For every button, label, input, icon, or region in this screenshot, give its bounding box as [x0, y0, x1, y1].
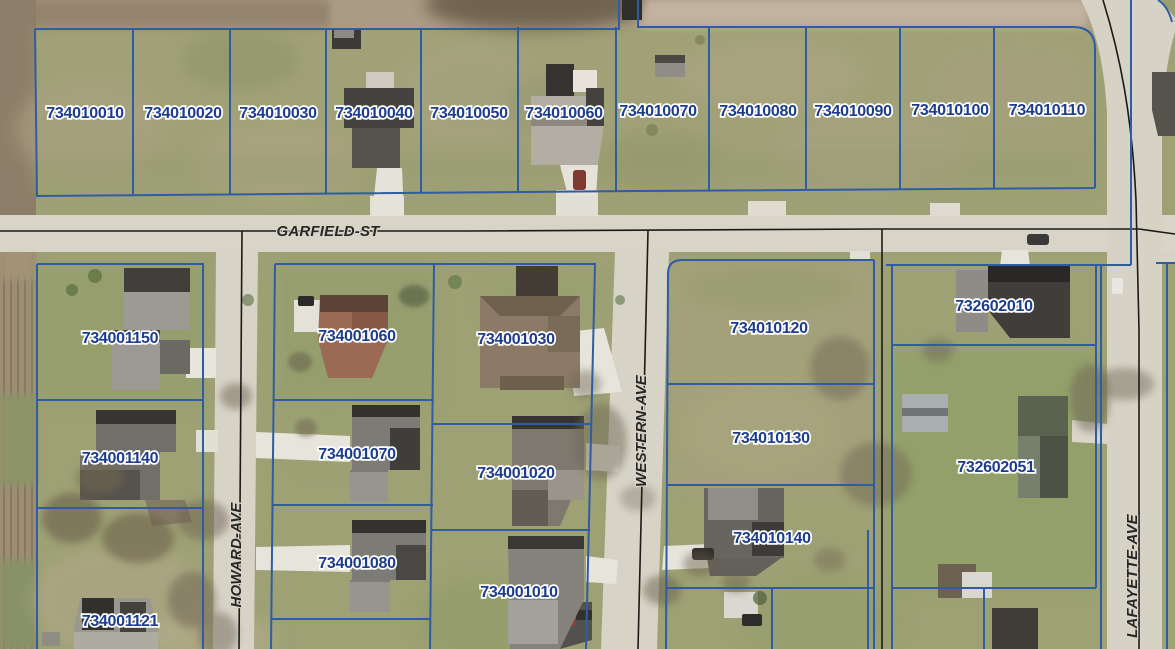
svg-text:734010100: 734010100: [911, 102, 989, 119]
svg-text:734001121: 734001121: [82, 613, 159, 630]
svg-text:734010090: 734010090: [814, 103, 892, 120]
svg-text:734010070: 734010070: [619, 103, 697, 120]
svg-text:WESTERN-AVE: WESTERN-AVE: [633, 374, 650, 487]
svg-text:LAFAYETTE-AVE: LAFAYETTE-AVE: [1124, 513, 1141, 638]
svg-text:GARFIELD-ST: GARFIELD-ST: [276, 223, 381, 240]
svg-text:734010020: 734010020: [144, 105, 222, 122]
svg-text:734010010: 734010010: [46, 105, 124, 122]
svg-text:734010110: 734010110: [1009, 102, 1086, 119]
svg-text:734010140: 734010140: [733, 530, 811, 547]
svg-text:734010080: 734010080: [719, 103, 797, 120]
svg-text:734001140: 734001140: [82, 450, 159, 467]
svg-text:734001030: 734001030: [477, 331, 555, 348]
svg-text:734001150: 734001150: [82, 330, 159, 347]
svg-text:734001020: 734001020: [477, 465, 555, 482]
svg-text:732602010: 732602010: [955, 298, 1033, 315]
svg-text:734001010: 734001010: [480, 584, 558, 601]
svg-text:734001080: 734001080: [318, 555, 396, 572]
svg-text:HOWARD-AVE: HOWARD-AVE: [228, 502, 245, 608]
svg-text:734010130: 734010130: [732, 430, 810, 447]
svg-text:734001070: 734001070: [318, 446, 396, 463]
svg-text:732602051: 732602051: [957, 459, 1035, 476]
svg-text:734010050: 734010050: [430, 105, 508, 122]
svg-text:734010030: 734010030: [239, 105, 317, 122]
svg-text:734010120: 734010120: [730, 320, 808, 337]
svg-text:734010040: 734010040: [335, 105, 413, 122]
svg-text:734010060: 734010060: [525, 105, 603, 122]
svg-text:734001060: 734001060: [318, 328, 396, 345]
